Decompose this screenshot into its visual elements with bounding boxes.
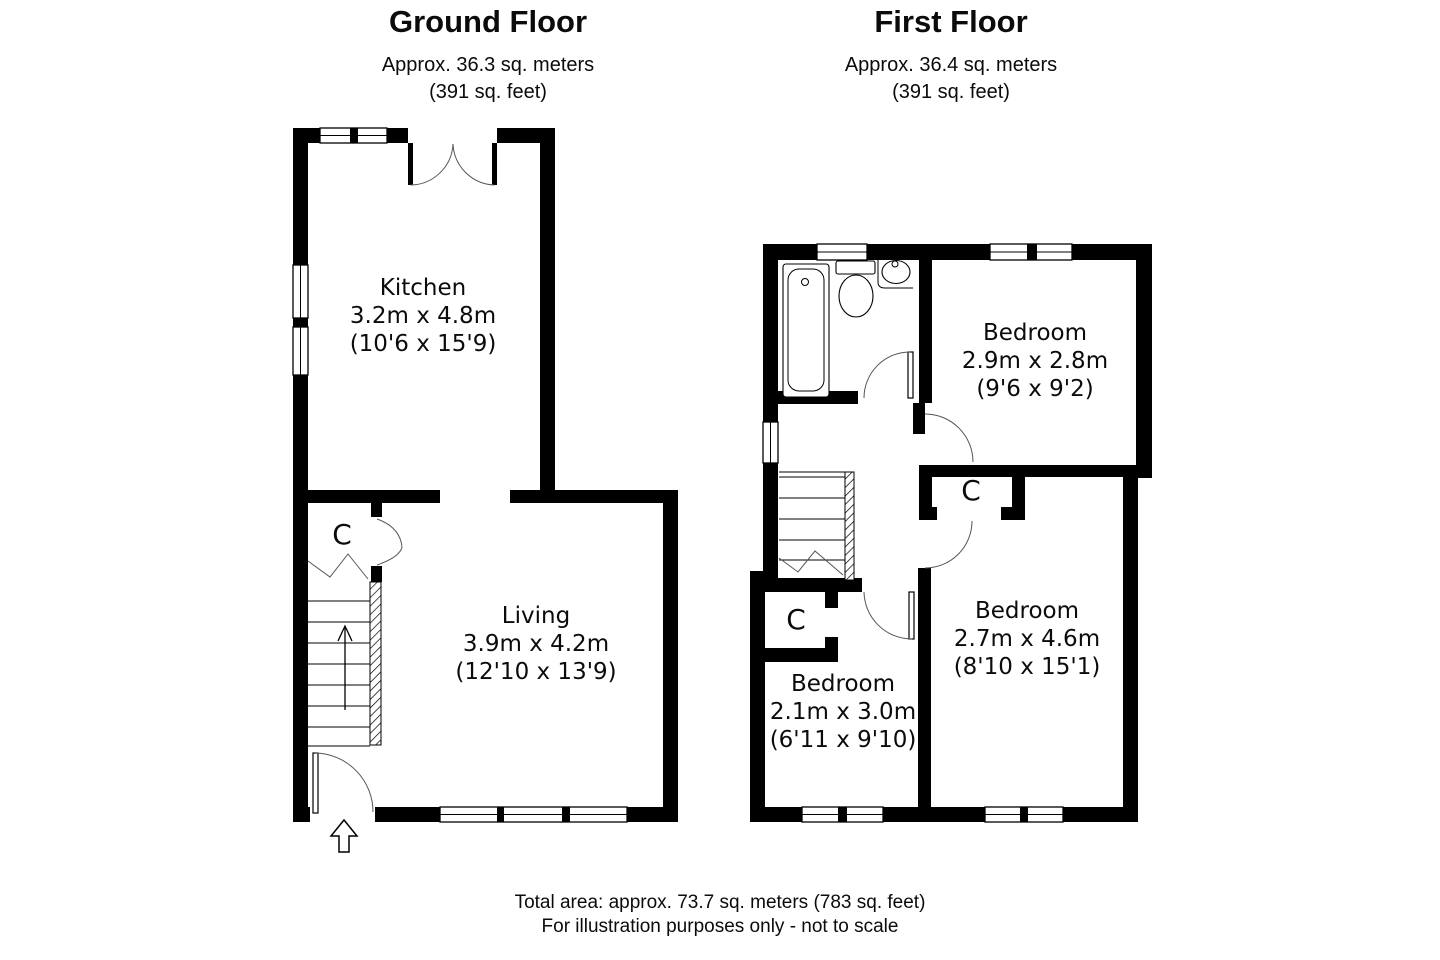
- kitchen-left-window-1: [293, 265, 308, 318]
- ff-mid-horizontal-wall: [919, 465, 1137, 477]
- living-label: Living: [502, 605, 570, 628]
- entrance-door: [313, 753, 373, 813]
- gf-closet-stub-top: [371, 503, 382, 517]
- gf-closet-label: C: [332, 521, 352, 549]
- kitchen-left-window-2: [293, 327, 308, 375]
- top-bedroom-door-stub: [913, 403, 925, 434]
- small-bedroom-window: [802, 807, 883, 822]
- ground-floor-area-metric: Approx. 36.3 sq. meters: [382, 54, 594, 77]
- right-bedroom-door: [925, 521, 972, 568]
- ground-floor-title: Ground Floor: [389, 4, 587, 40]
- gf-stair-break-line: [308, 554, 368, 579]
- right-bedroom-dim-metric: 2.7m x 4.6m: [954, 628, 1100, 651]
- entry-arrow-icon: [331, 820, 357, 852]
- ff-left-wall-lower: [750, 571, 765, 822]
- gf-closet-stub-bottom: [371, 566, 382, 582]
- kitchen-dim-imperial: (10'6 x 15'9): [350, 333, 497, 356]
- floorplan-canvas: [0, 0, 1440, 960]
- top-bedroom-label: Bedroom: [983, 322, 1087, 345]
- ff-stairs: [779, 472, 854, 580]
- bathroom-bedroom-divider: [919, 258, 932, 403]
- first-floor-area-imperial: (391 sq. feet): [892, 81, 1010, 104]
- living-dim-metric: 3.9m x 4.2m: [463, 633, 609, 656]
- upper-closet-stub-left: [919, 507, 937, 520]
- french-doors: [408, 143, 497, 185]
- sink-icon: [878, 258, 913, 288]
- gf-living-right-wall: [663, 490, 678, 822]
- ground-floor-area-imperial: (391 sq. feet): [429, 81, 547, 104]
- gf-french-door-opening: [408, 127, 497, 144]
- total-area-text: Total area: approx. 73.7 sq. meters (783…: [515, 892, 926, 914]
- small-bedroom-dim-imperial: (6'11 x 9'10): [770, 729, 917, 752]
- stair-landing-window: [763, 422, 778, 463]
- right-bedroom-window: [985, 807, 1063, 822]
- ff-stair-treads: [779, 472, 845, 560]
- ff-stair-break-line: [779, 551, 843, 575]
- kitchen-top-window: [320, 128, 387, 143]
- first-floor-area-metric: Approx. 36.4 sq. meters: [845, 54, 1057, 77]
- living-dim-imperial: (12'10 x 13'9): [455, 661, 616, 684]
- gf-entrance-opening: [310, 806, 375, 823]
- first-floor-title: First Floor: [874, 4, 1027, 40]
- top-bedroom-dim-imperial: (9'6 x 9'2): [976, 378, 1093, 401]
- gf-closet-double-doors: [377, 519, 402, 565]
- small-bedroom-dim-metric: 2.1m x 3.0m: [770, 701, 916, 724]
- bedrooms-divider-wall: [918, 568, 931, 822]
- gf-stairs: [308, 554, 381, 746]
- ff-stair-hatch-wall: [845, 472, 854, 580]
- gf-doors: [313, 143, 497, 813]
- top-bedroom-dim-metric: 2.9m x 2.8m: [962, 350, 1108, 373]
- gf-stair-treads: [308, 601, 370, 746]
- gf-divider-wall-right: [510, 490, 678, 503]
- right-bedroom-label: Bedroom: [975, 600, 1079, 623]
- ff-upper-closet-label: C: [961, 477, 981, 505]
- small-bedroom-label: Bedroom: [791, 673, 895, 696]
- gf-windows: [293, 128, 627, 822]
- gf-divider-wall-left: [308, 490, 440, 503]
- ground-floor-walls: [293, 128, 678, 822]
- living-bottom-window: [440, 807, 627, 822]
- ff-right-wall-lower: [1123, 465, 1138, 822]
- bathroom-window: [817, 244, 867, 260]
- ff-lower-closet-label: C: [786, 606, 806, 634]
- right-bedroom-dim-imperial: (8'10 x 15'1): [954, 656, 1101, 679]
- ff-right-wall-upper: [1136, 244, 1152, 478]
- kitchen-label: Kitchen: [380, 277, 466, 300]
- ground-floor-plan: [293, 127, 678, 852]
- gf-stair-direction-arrow: [338, 626, 352, 710]
- kitchen-dim-metric: 3.2m x 4.8m: [350, 305, 496, 328]
- gf-stair-hatch-wall: [370, 582, 381, 745]
- gf-kitchen-right-wall: [540, 128, 555, 503]
- gf-left-wall: [293, 128, 308, 822]
- floorplan-page: { "ground_floor": { "title": "Ground Flo…: [0, 0, 1440, 960]
- toilet-icon: [836, 261, 875, 317]
- lower-closet-bottom-wall: [750, 648, 838, 662]
- top-bedroom-door: [925, 414, 973, 462]
- bathroom-fixtures: [783, 258, 913, 397]
- disclaimer-text: For illustration purposes only - not to …: [542, 916, 899, 938]
- ff-left-wall-upper: [763, 244, 778, 583]
- upper-closet-stub-right: [1001, 507, 1025, 520]
- bathroom-door: [864, 352, 913, 398]
- bathtub-icon: [783, 264, 829, 397]
- small-bedroom-door: [864, 592, 914, 639]
- lower-closet-stub-top: [825, 592, 838, 608]
- top-bedroom-window: [990, 244, 1072, 260]
